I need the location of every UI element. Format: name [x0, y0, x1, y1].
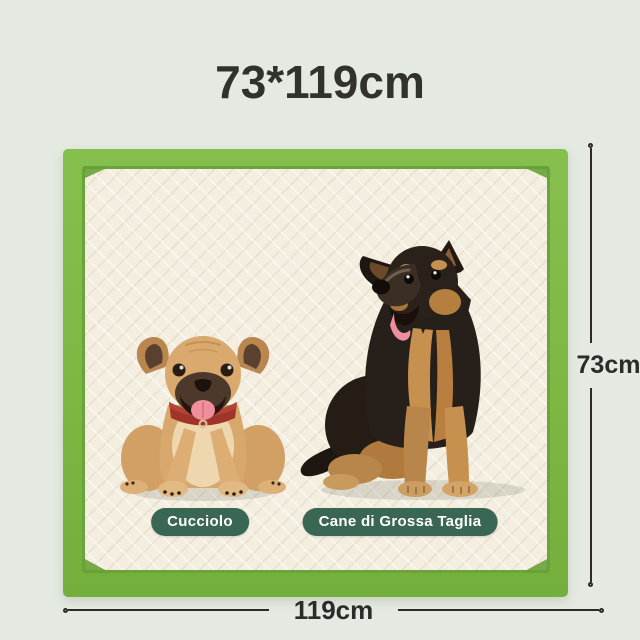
dimension-line — [590, 388, 592, 583]
height-dimension-indicator: 73cm — [586, 143, 595, 587]
height-dimension-label: 73cm — [577, 353, 640, 378]
size-title: 73*119cm — [0, 55, 640, 109]
dimension-line — [590, 148, 592, 343]
dimension-endpoint-dot — [588, 582, 593, 587]
puppy-label: Cucciolo — [167, 513, 233, 530]
puppy-label-badge: Cucciolo — [151, 508, 249, 536]
puppy-illustration — [116, 330, 294, 502]
dimension-endpoint-dot — [599, 608, 604, 613]
dimension-line — [68, 609, 269, 611]
width-dimension-indicator: 119cm — [63, 600, 604, 620]
large-dog-label: Cane di Grossa Taglia — [319, 513, 482, 530]
width-dimension-label: 119cm — [294, 597, 374, 623]
large-dog-illustration — [295, 238, 547, 500]
large-dog-label-badge: Cane di Grossa Taglia — [303, 508, 498, 536]
pad-size-infographic: 73*119cm — [0, 0, 640, 640]
dimension-line — [398, 609, 599, 611]
